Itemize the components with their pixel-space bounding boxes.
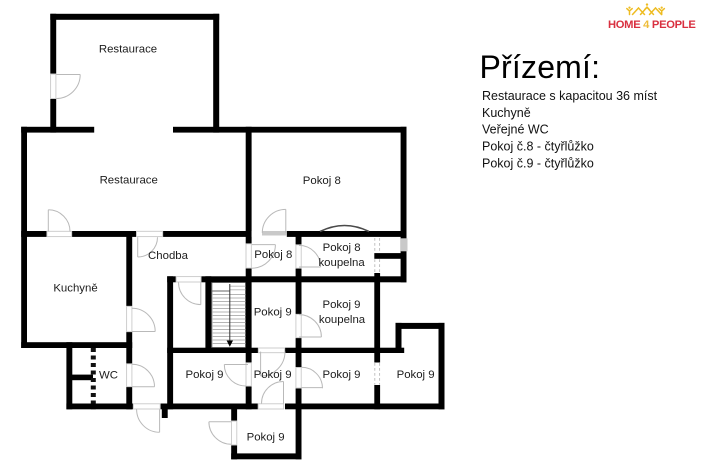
svg-text:Pokoj 8: Pokoj 8	[323, 242, 361, 254]
svg-text:koupelna: koupelna	[318, 257, 365, 269]
svg-text:Přízemí:: Přízemí:	[480, 49, 601, 85]
svg-text:Pokoj č.8 - čtyřlůžko: Pokoj č.8 - čtyřlůžko	[482, 140, 594, 154]
svg-text:Kuchyně: Kuchyně	[53, 282, 97, 294]
svg-text:Pokoj 9: Pokoj 9	[254, 369, 292, 381]
svg-text:Pokoj 8: Pokoj 8	[303, 175, 341, 187]
svg-text:Pokoj č.9 - čtyřlůžko: Pokoj č.9 - čtyřlůžko	[482, 157, 594, 171]
svg-text:WC: WC	[99, 369, 118, 381]
svg-text:Pokoj 9: Pokoj 9	[254, 306, 292, 318]
svg-text:Pokoj 9: Pokoj 9	[186, 369, 224, 381]
svg-text:Chodba: Chodba	[148, 250, 189, 262]
svg-text:Pokoj 9: Pokoj 9	[247, 432, 285, 444]
svg-text:Pokoj 9: Pokoj 9	[323, 369, 361, 381]
svg-text:Restaurace: Restaurace	[100, 175, 158, 187]
svg-text:Veřejné WC: Veřejné WC	[482, 123, 549, 137]
svg-text:Kuchyně: Kuchyně	[482, 106, 531, 120]
svg-text:koupelna: koupelna	[319, 314, 366, 326]
svg-text:Pokoj 8: Pokoj 8	[254, 249, 292, 261]
svg-text:HOME 4 PEOPLE: HOME 4 PEOPLE	[608, 19, 696, 31]
svg-text:Restaurace: Restaurace	[99, 44, 157, 56]
svg-text:Restaurace s kapacitou 36 míst: Restaurace s kapacitou 36 míst	[482, 89, 658, 103]
svg-text:Pokoj 9: Pokoj 9	[397, 369, 435, 381]
svg-text:Pokoj 9: Pokoj 9	[323, 299, 361, 311]
